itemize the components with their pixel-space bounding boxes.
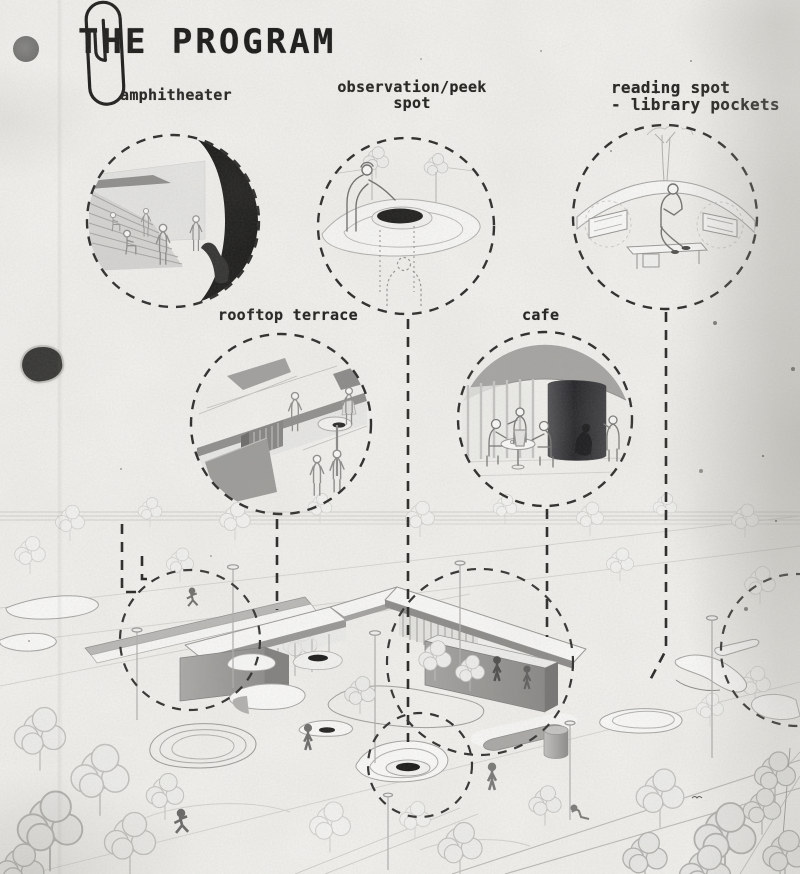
vignette-rooftop-terrace bbox=[187, 330, 375, 518]
peek-hole bbox=[396, 763, 420, 771]
vignette-observation-peek-spot bbox=[314, 134, 498, 318]
site-axonometric-drawing bbox=[0, 490, 800, 874]
hole-punch-dot bbox=[13, 36, 39, 62]
dotted-person-below bbox=[387, 258, 421, 307]
paperclip-icon bbox=[70, 0, 150, 129]
sitting-person bbox=[572, 806, 590, 820]
courtyard-peek-hole bbox=[308, 655, 328, 662]
label-reading-spot: reading spot - library pockets bbox=[611, 79, 780, 113]
dark-wall bbox=[197, 139, 263, 303]
building bbox=[85, 587, 586, 712]
program-board: THE PROGRAM amphitheater observation/pee… bbox=[0, 0, 800, 874]
ink-blot bbox=[20, 344, 64, 383]
reading-person bbox=[661, 184, 683, 250]
peek-hole bbox=[377, 209, 423, 224]
vignette-amphitheater bbox=[83, 131, 263, 311]
library-pocket-right bbox=[703, 213, 737, 237]
page-title: THE PROGRAM bbox=[78, 22, 336, 62]
paper-specks bbox=[0, 0, 2, 2]
label-cafe: cafe bbox=[522, 307, 559, 323]
kiosk-cylinder bbox=[544, 726, 568, 759]
label-observation-peek-spot: observation/peek spot bbox=[312, 79, 512, 111]
bird bbox=[692, 797, 702, 799]
vignette-reading-spot bbox=[569, 121, 761, 313]
label-amphitheater: amphitheater bbox=[120, 87, 232, 103]
power-lines bbox=[0, 512, 800, 524]
vignette-cafe bbox=[454, 328, 636, 510]
tree bbox=[647, 125, 693, 181]
